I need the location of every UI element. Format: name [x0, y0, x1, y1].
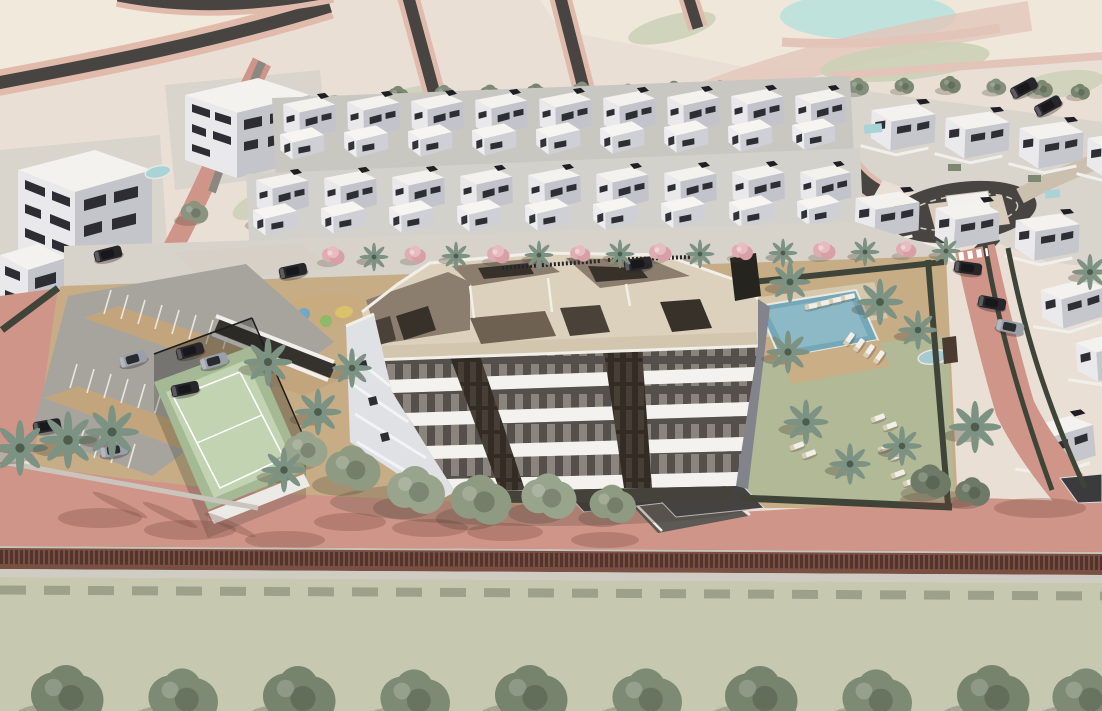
- villa-pool: [1045, 189, 1061, 199]
- villa-pool: [864, 123, 883, 134]
- stone-feature-wall: [942, 336, 958, 364]
- render-canvas: [0, 0, 1102, 711]
